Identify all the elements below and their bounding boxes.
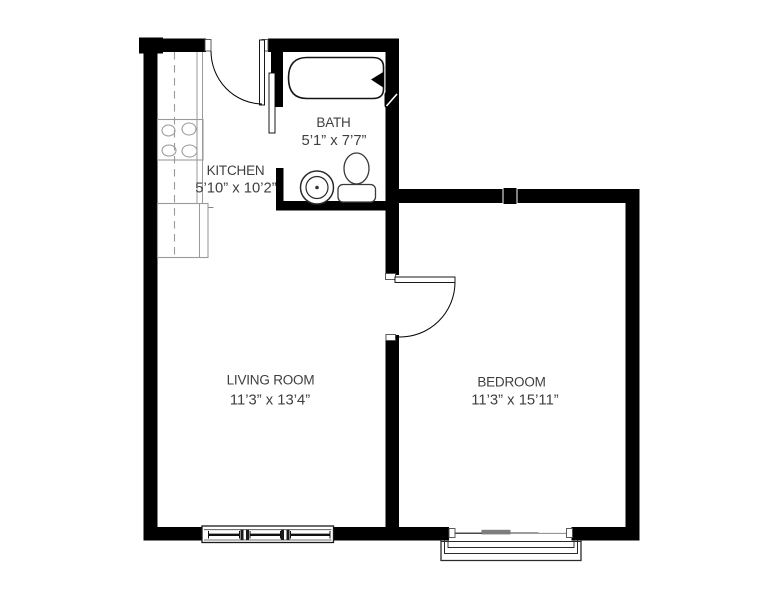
bedroom-door-leaf [395, 277, 455, 283]
room-labels: BATH 5’1” x 7’7” KITCHEN 5’10” x 10’2” L… [195, 115, 559, 409]
toilet-bowl [344, 153, 369, 184]
wall-bottom-living-left [144, 527, 203, 541]
burner [182, 123, 196, 135]
wall-bottom-bedroom-left [399, 527, 450, 541]
door-jamb [205, 40, 211, 52]
living-room-dimensions: 11’3” x 13’4” [230, 393, 310, 409]
sliding-glass-door [449, 529, 573, 538]
burner [162, 125, 175, 136]
balcony-rail-mid [445, 540, 578, 554]
entry-door-swing-arc [211, 51, 262, 104]
wall-joint-mark [503, 188, 517, 205]
toilet-tank [338, 185, 376, 203]
stove-icon [158, 120, 204, 161]
bath-dimensions: 5’1” x 7’7” [302, 133, 367, 149]
floorplan-drawing: BATH 5’1” x 7’7” KITCHEN 5’10” x 10’2” L… [0, 0, 774, 599]
bathtub-outline [289, 58, 384, 99]
bedroom-door [386, 274, 456, 341]
wall-bottom-bedroom-right [572, 527, 640, 541]
burner [162, 145, 176, 156]
slider-panel [455, 533, 482, 535]
wall-bath-top [268, 39, 399, 53]
bedroom-dimensions: 11’3” x 15’11” [471, 393, 559, 409]
door-jamb [449, 529, 455, 538]
toilet-icon [338, 153, 376, 202]
living-room-label: LIVING ROOM [227, 373, 315, 388]
wall-bath-bottom [276, 201, 399, 211]
wall-top-entry [144, 39, 207, 53]
door-jamb [567, 529, 573, 538]
window [202, 526, 334, 543]
entry-door [205, 40, 268, 106]
burner [182, 145, 197, 157]
kitchen-dimensions: 5’10” x 10’2” [195, 181, 276, 197]
floorplan-canvas: BATH 5’1” x 7’7” KITCHEN 5’10” x 10’2” L… [0, 0, 774, 599]
wall-divider-upper [386, 39, 400, 276]
bedroom-door-swing-arc [399, 283, 455, 337]
balcony-rail-outer [441, 540, 581, 561]
wall-bottom-living-right [334, 527, 399, 541]
sink-drain [315, 186, 319, 190]
wall-divider-lower [386, 335, 400, 541]
kitchen-label: KITCHEN [207, 163, 265, 178]
wall-left [144, 38, 158, 541]
bathroom-door-leaf [269, 73, 275, 133]
bath-label: BATH [316, 115, 350, 130]
base-cabinet [158, 204, 209, 258]
bedroom-label: BEDROOM [477, 375, 545, 390]
sink-icon [301, 171, 334, 204]
slider-panel [482, 530, 511, 535]
balcony [441, 540, 581, 561]
kitchen-counter [158, 52, 214, 258]
door-jamb [386, 335, 396, 341]
wall-right [626, 189, 640, 541]
entry-door-leaf [260, 40, 265, 105]
door-jamb [386, 274, 396, 280]
bathroom-door [269, 73, 275, 133]
slider-panel [511, 532, 539, 534]
walls [139, 38, 640, 541]
bathtub-icon [289, 58, 399, 109]
